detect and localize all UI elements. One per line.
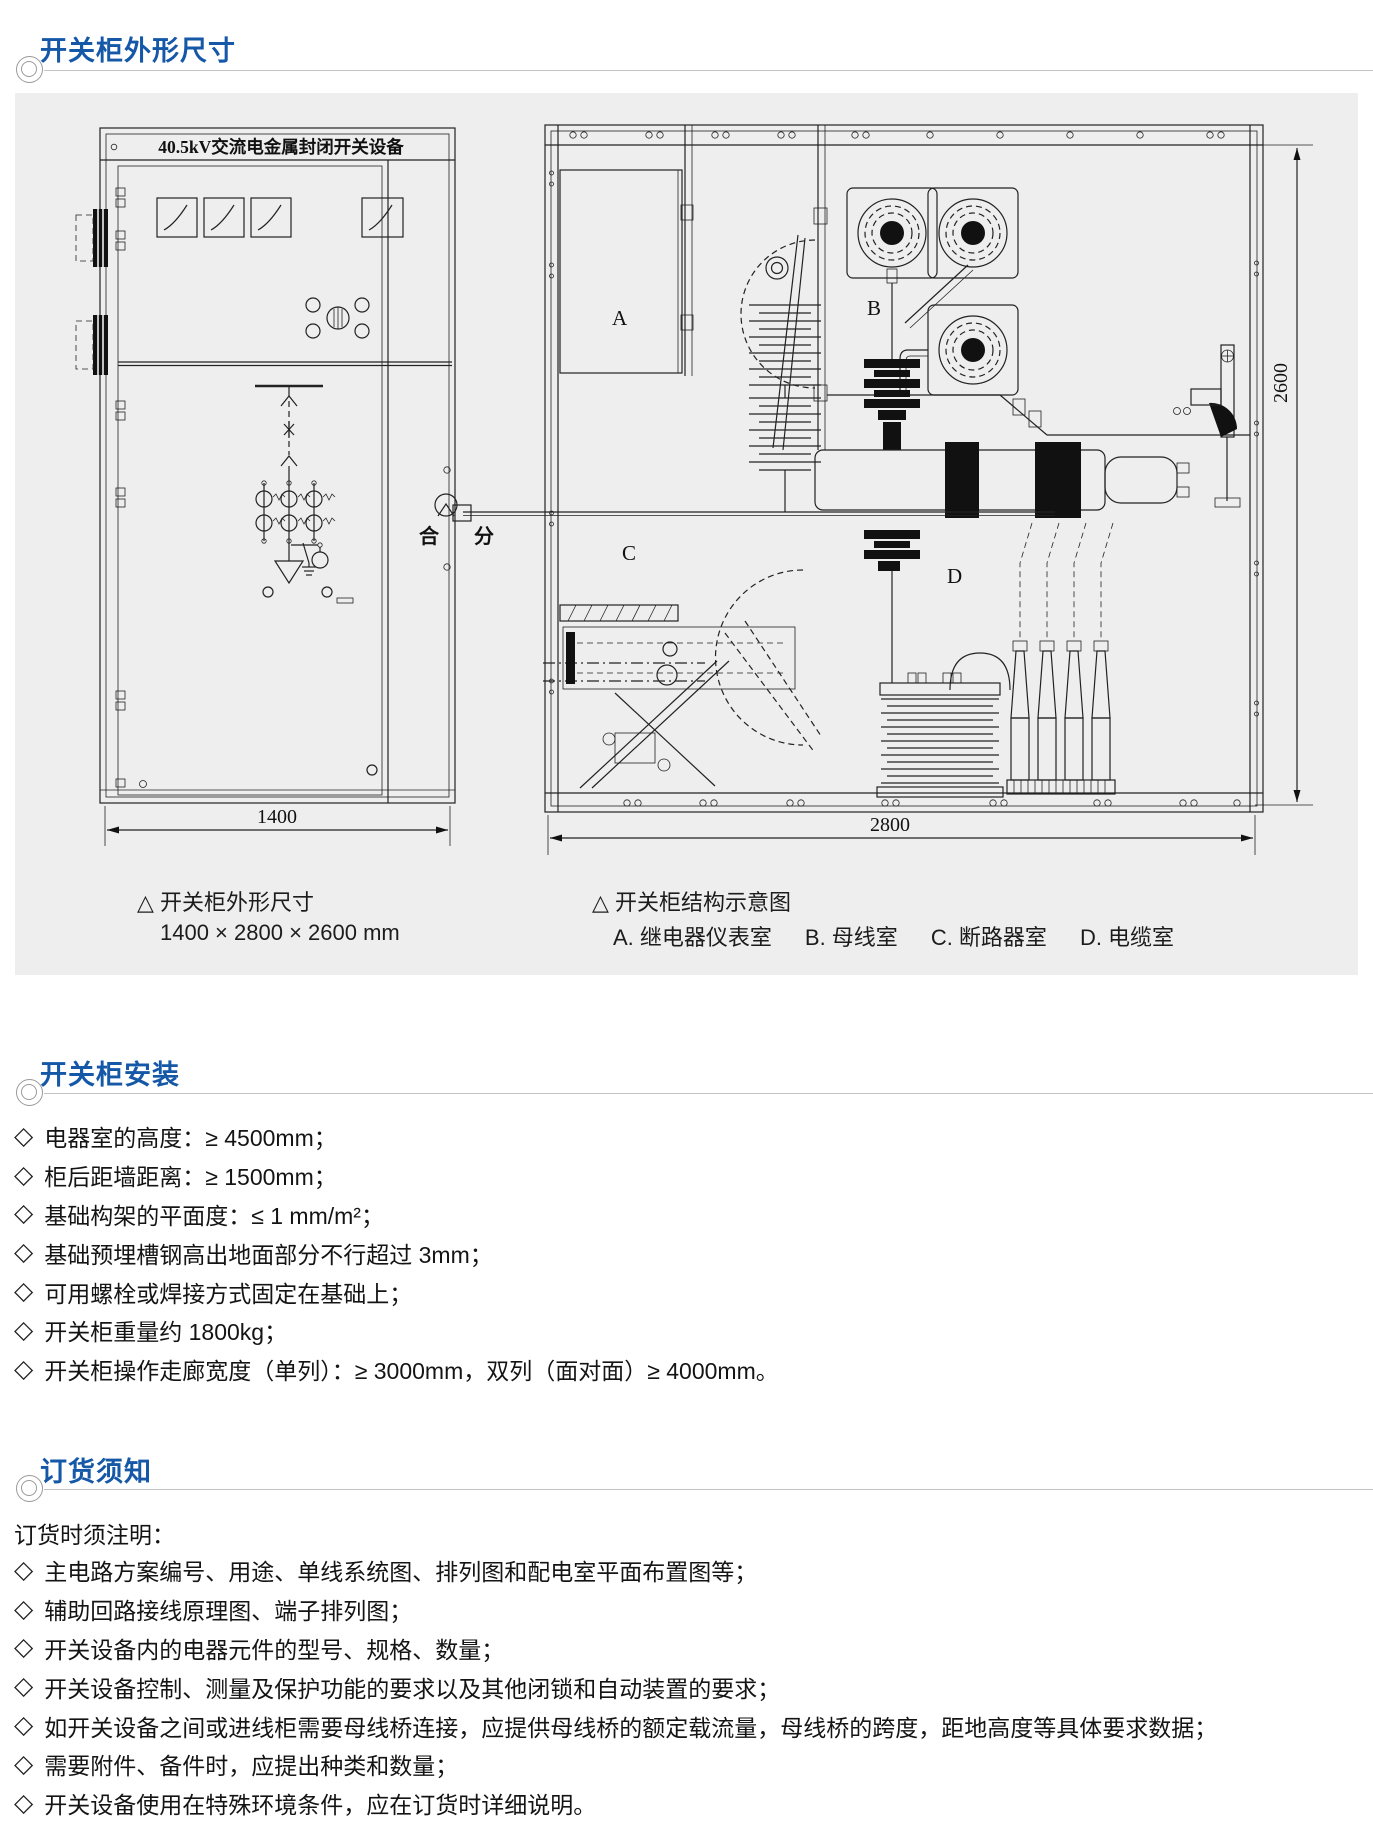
- rib-stack: [749, 305, 821, 512]
- section-title-installation: 开关柜安装: [40, 1053, 180, 1092]
- diamond-bullet-icon: ◇: [14, 1124, 33, 1149]
- front-width-dimension: 1400: [105, 806, 450, 846]
- diamond-bullet-icon: ◇: [14, 1597, 33, 1622]
- open-label: 分: [474, 525, 494, 548]
- section-width-label: 2800: [870, 814, 910, 836]
- hinge-icon: [76, 209, 108, 267]
- busbar-insulator: [928, 188, 1018, 278]
- diamond-bullet-icon: ◇: [14, 1674, 33, 1699]
- legend-item-c: C. 断路器室: [931, 920, 1047, 952]
- ct-symbols: [256, 481, 335, 543]
- section-height-dimension: 2600: [1255, 145, 1313, 805]
- indicator-lamps: [306, 298, 369, 338]
- door-clips: [116, 188, 125, 787]
- legend-item-d: D. 电缆室: [1080, 920, 1174, 952]
- front-view-drawing: 40.5kV交流电金属封闭开关设备: [76, 128, 494, 846]
- compartment-b-label: B: [867, 296, 881, 320]
- section-height-label: 2600: [1270, 363, 1292, 403]
- divider-line: [44, 1093, 1373, 1094]
- busbar-insulator: [928, 305, 1018, 395]
- diamond-bullet-icon: ◇: [14, 1240, 33, 1265]
- section-title-dimensions: 开关柜外形尺寸: [40, 29, 236, 68]
- technical-drawings: 40.5kV交流电金属封闭开关设备: [15, 93, 1358, 975]
- front-view-title: 40.5kV交流电金属封闭开关设备: [158, 137, 404, 157]
- cable-terminations: [1007, 523, 1115, 794]
- compartment-d-label: D: [947, 564, 962, 588]
- bolt-circles-top: [570, 132, 1224, 138]
- ordering-bullet-list: ◇主电路方案编号、用途、单线系统图、排列图和配电室平面布置图等； ◇辅助回路接线…: [14, 1551, 1217, 1823]
- section-view-caption-title: △ 开关柜结构示意图: [592, 885, 791, 917]
- meter-gauge: [157, 198, 403, 237]
- single-line-diagram: [255, 386, 335, 583]
- diamond-bullet-icon: ◇: [14, 1357, 33, 1382]
- diamond-bullet-icon: ◇: [14, 1558, 33, 1583]
- installation-bullet-list: ◇电器室的高度：≥ 4500mm； ◇柜后距墙距离：≥ 1500mm； ◇基础构…: [14, 1117, 779, 1389]
- list-item: ◇基础构架的平面度：≤ 1 mm/m²；: [14, 1195, 779, 1234]
- list-item: ◇开关柜重量约 1800kg；: [14, 1311, 779, 1350]
- hinge-icon: [76, 315, 108, 375]
- diamond-bullet-icon: ◇: [14, 1713, 33, 1738]
- ring-icon: [16, 1475, 43, 1502]
- list-item: ◇需要附件、备件时，应提出种类和数量；: [14, 1745, 1217, 1784]
- bolt-circles-bottom: [624, 800, 1240, 806]
- section-view-drawing: A B C D: [453, 125, 1313, 855]
- drawing-panel: 40.5kV交流电金属封闭开关设备: [15, 93, 1358, 975]
- section-view-caption-legend: A. 继电器仪表室 B. 母线室 C. 断路器室 D. 电缆室: [613, 920, 1174, 952]
- list-item: ◇开关设备控制、测量及保护功能的要求以及其他闭锁和自动装置的要求；: [14, 1667, 1217, 1706]
- operating-mechanism: [1174, 345, 1241, 507]
- diamond-bullet-icon: ◇: [14, 1318, 33, 1343]
- compartment-c-label: C: [622, 541, 636, 565]
- list-item: ◇辅助回路接线原理图、端子排列图；: [14, 1590, 1217, 1629]
- divider-line: [44, 70, 1373, 71]
- section-title-ordering: 订货须知: [40, 1450, 152, 1489]
- legend-item-a: A. 继电器仪表室: [613, 920, 772, 952]
- front-view-caption-dimensions: 1400 × 2800 × 2600 mm: [160, 920, 400, 946]
- list-item: ◇基础预埋槽钢高出地面部分不行超过 3mm；: [14, 1233, 779, 1272]
- diamond-bullet-icon: ◇: [14, 1791, 33, 1816]
- legend-item-b: B. 母线室: [805, 920, 898, 952]
- ring-icon: [16, 1079, 43, 1106]
- list-item: ◇开关设备内的电器元件的型号、规格、数量；: [14, 1629, 1217, 1668]
- ring-icon: [16, 56, 43, 83]
- list-item: ◇电器室的高度：≥ 4500mm；: [14, 1117, 779, 1156]
- front-view-caption-title: △ 开关柜外形尺寸: [137, 885, 314, 917]
- close-open-knob: [435, 467, 457, 570]
- list-item: ◇开关设备使用在特殊环境条件，应在订货时详细说明。: [14, 1784, 1217, 1823]
- ordering-intro: 订货时须注明：: [14, 1516, 175, 1550]
- list-item: ◇如开关设备之间或进线柜需要母线桥连接，应提供母线桥的额定载流量，母线桥的跨度，…: [14, 1706, 1217, 1745]
- diamond-bullet-icon: ◇: [14, 1752, 33, 1777]
- list-item: ◇柜后距墙距离：≥ 1500mm；: [14, 1156, 779, 1195]
- divider-line: [44, 1489, 1373, 1490]
- voltage-transformer: [877, 673, 1003, 797]
- upper-bushing: [864, 359, 920, 450]
- front-width-label: 1400: [257, 806, 297, 828]
- breaker-truck: [543, 605, 795, 788]
- lower-bushing: [864, 530, 920, 683]
- busbar-insulator: [847, 188, 937, 283]
- circuit-breaker: [815, 442, 1189, 518]
- close-label: 合: [419, 524, 440, 548]
- list-item: ◇主电路方案编号、用途、单线系统图、排列图和配电室平面布置图等；: [14, 1551, 1217, 1590]
- wall-rivets: [550, 171, 1259, 716]
- diamond-bullet-icon: ◇: [14, 1201, 33, 1226]
- list-item: ◇可用螺栓或焊接方式固定在基础上；: [14, 1272, 779, 1311]
- diamond-bullet-icon: ◇: [14, 1163, 33, 1188]
- diamond-bullet-icon: ◇: [14, 1279, 33, 1304]
- compartment-a-label: A: [612, 306, 628, 330]
- diamond-bullet-icon: ◇: [14, 1635, 33, 1660]
- section-width-dimension: 2800: [548, 814, 1255, 855]
- list-item: ◇开关柜操作走廊宽度（单列）：≥ 3000mm，双列（面对面）≥ 4000mm。: [14, 1350, 779, 1389]
